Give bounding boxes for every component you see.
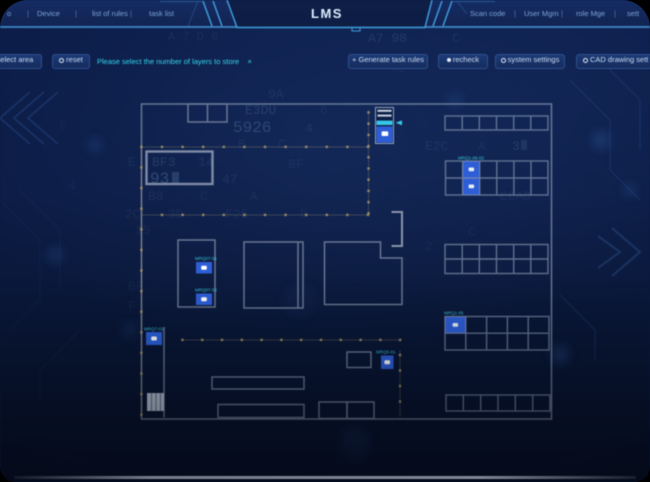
svg-text:MRQ07-01: MRQ07-01 — [195, 256, 218, 261]
svg-text:MRQ7-01: MRQ7-01 — [144, 327, 164, 332]
svg-text:MRQ1-06-02: MRQ1-06-02 — [458, 156, 485, 161]
svg-text:MRQ07-02: MRQ07-02 — [195, 288, 218, 293]
svg-text:MRQ5-01: MRQ5-01 — [376, 350, 396, 355]
svg-text:MRQ1-05: MRQ1-05 — [444, 311, 464, 316]
